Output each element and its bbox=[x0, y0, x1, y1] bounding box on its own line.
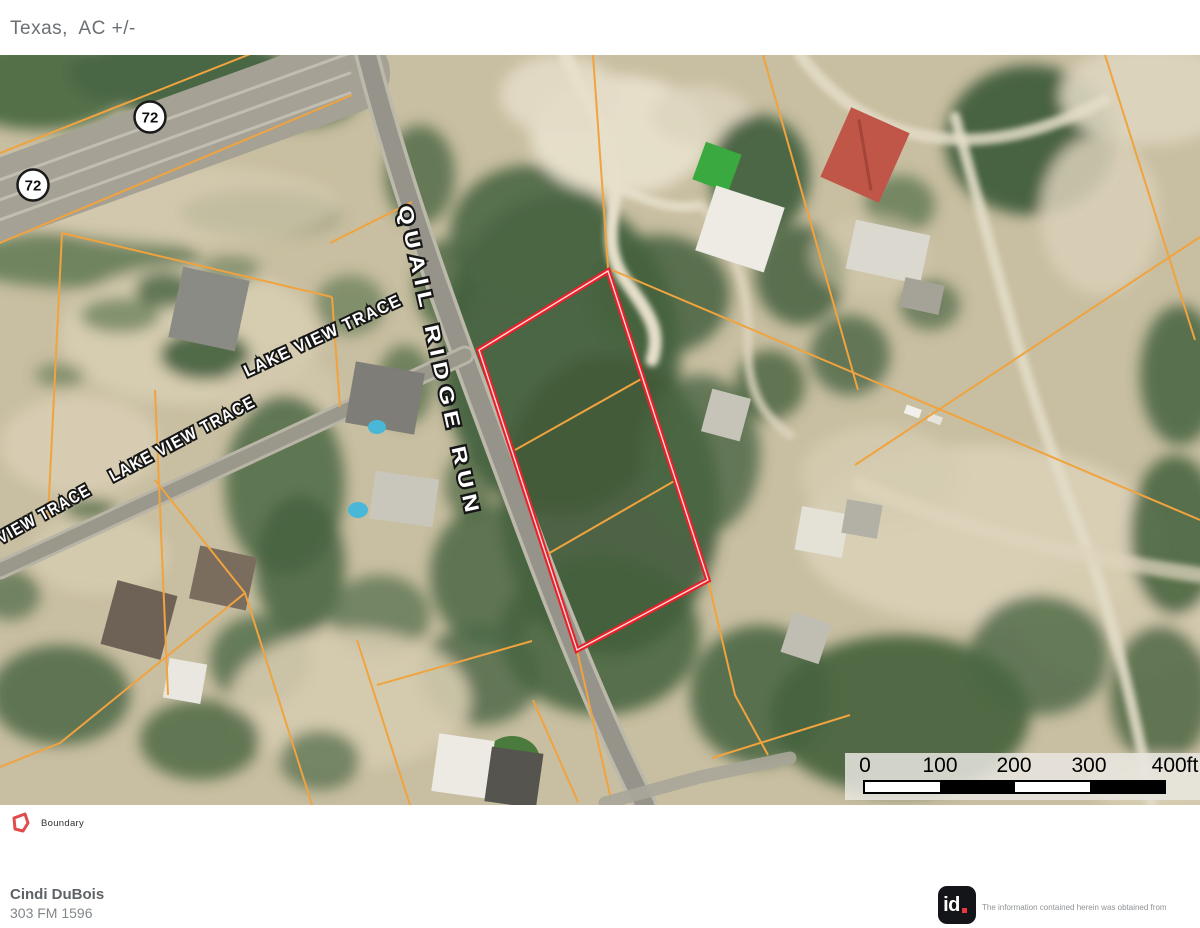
legend-item-boundary: Boundary bbox=[41, 818, 84, 829]
disclaimer: The information contained herein was obt… bbox=[982, 884, 1181, 928]
scale-bar: 0 100 200 300 400ft bbox=[845, 753, 1200, 800]
svg-text:72: 72 bbox=[142, 110, 159, 127]
agent-name: Cindi DuBois bbox=[10, 886, 104, 903]
highway-shield-72: 72 bbox=[18, 170, 49, 201]
scale-tick-label: 100 bbox=[922, 754, 957, 778]
listing-map-page: Texas, AC +/- bbox=[0, 0, 1200, 928]
scale-tick-label: 200 bbox=[996, 754, 1031, 778]
satellite-map-canvas: QUAIL RIDGE RUN LAKE VIEW TRACE LAKE VIE… bbox=[0, 55, 1200, 805]
scale-tick-label: 300 bbox=[1071, 754, 1106, 778]
boundary-legend-icon bbox=[10, 812, 30, 834]
scale-tick-label: 0 bbox=[859, 754, 871, 778]
land-id-logo-dot bbox=[962, 908, 967, 913]
scale-tick-label: 400ft bbox=[1152, 754, 1199, 778]
page-title: Texas, AC +/- bbox=[10, 18, 136, 40]
svg-text:72: 72 bbox=[25, 178, 42, 195]
scale-bar-segments bbox=[863, 780, 1166, 794]
land-id-logo: id bbox=[938, 886, 976, 924]
highway-shield-72: 72 bbox=[135, 102, 166, 133]
land-id-logo-text: id bbox=[943, 894, 960, 917]
agent-info: Cindi DuBois 303 FM 1596 bbox=[10, 886, 104, 921]
brand-block: id The information contained herein was … bbox=[938, 884, 1198, 928]
disclaimer-line: The information contained herein was obt… bbox=[982, 903, 1181, 913]
agent-address: 303 FM 1596 bbox=[10, 905, 104, 921]
legend: Boundary bbox=[10, 812, 84, 834]
satellite-map: QUAIL RIDGE RUN LAKE VIEW TRACE LAKE VIE… bbox=[0, 55, 1200, 805]
